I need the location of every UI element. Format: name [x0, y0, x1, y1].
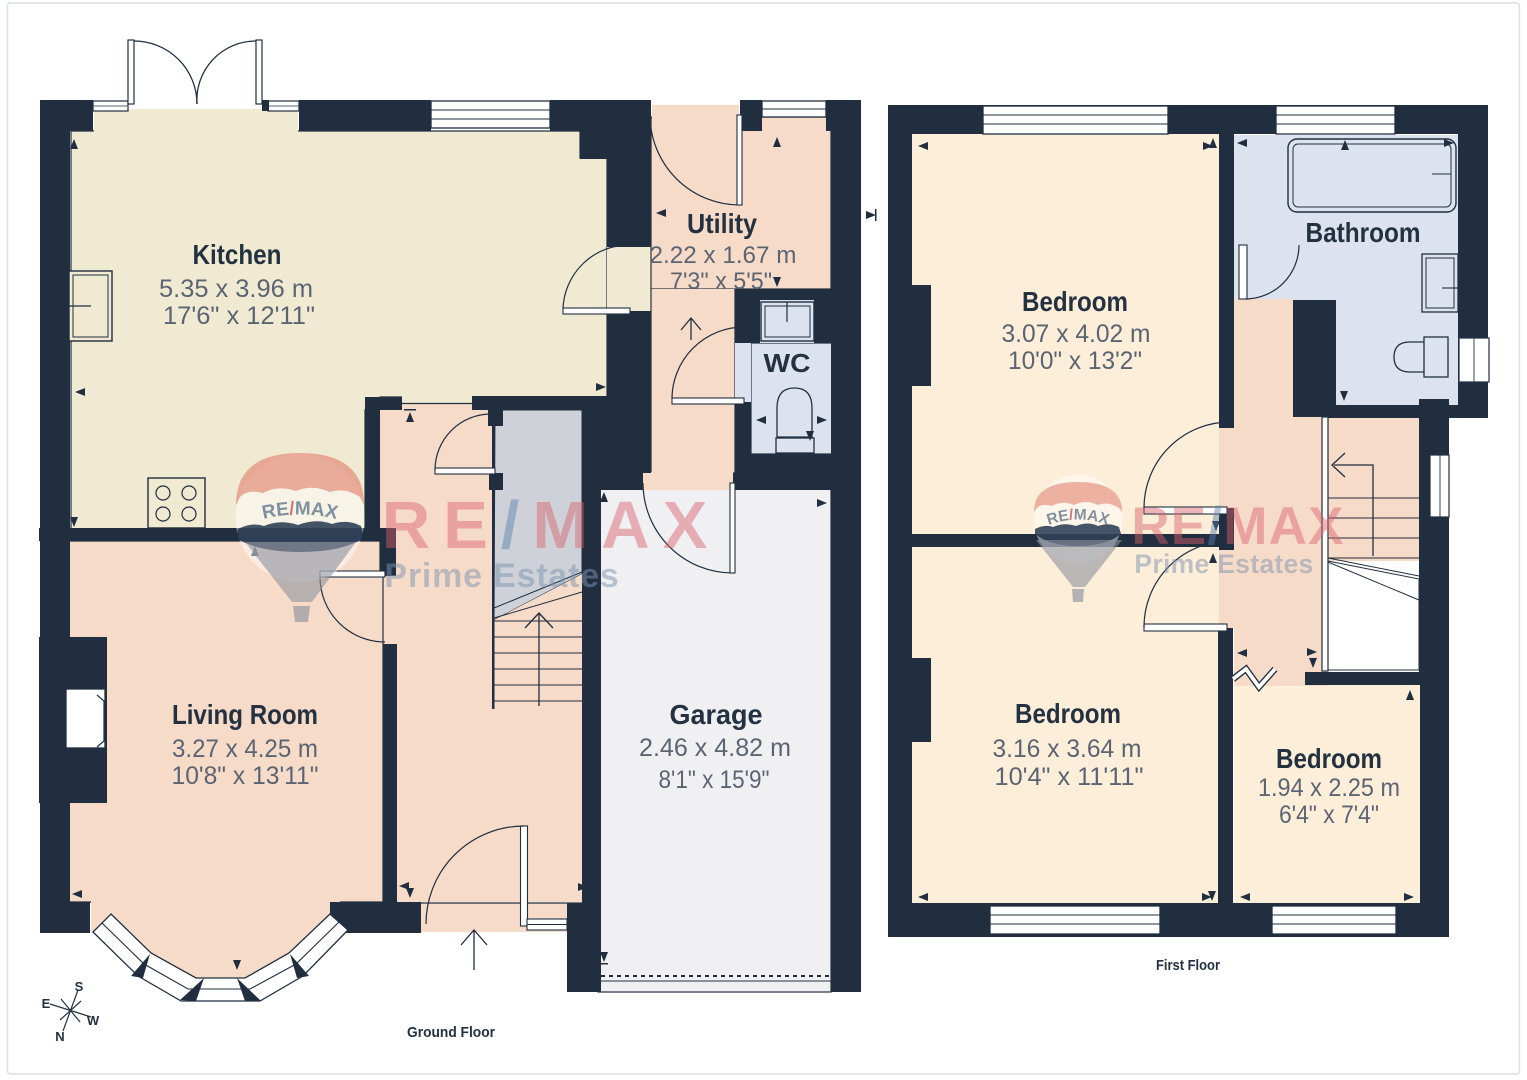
svg-text:1.94 x 2.25 m: 1.94 x 2.25 m	[1258, 774, 1400, 802]
svg-text:RE/MAX: RE/MAX	[382, 488, 721, 563]
svg-text:RE/MAX: RE/MAX	[1131, 497, 1344, 556]
svg-text:First Floor: First Floor	[1156, 957, 1220, 974]
svg-text:Utility: Utility	[687, 208, 757, 239]
svg-text:Garage: Garage	[670, 699, 763, 730]
svg-text:17'6" x 12'11": 17'6" x 12'11"	[163, 302, 315, 330]
svg-text:Bedroom: Bedroom	[1015, 698, 1121, 729]
svg-text:N: N	[55, 1029, 64, 1044]
svg-text:3.07 x 4.02 m: 3.07 x 4.02 m	[1002, 320, 1151, 348]
svg-text:Kitchen: Kitchen	[193, 239, 282, 270]
svg-text:Ground Floor: Ground Floor	[407, 1024, 495, 1041]
svg-text:10'4" x 11'11": 10'4" x 11'11"	[995, 763, 1144, 791]
svg-text:6'4" x 7'4": 6'4" x 7'4"	[1279, 801, 1379, 829]
svg-text:10'8" x 13'11": 10'8" x 13'11"	[172, 762, 319, 790]
svg-text:Living Room: Living Room	[172, 699, 318, 730]
svg-text:WC: WC	[764, 348, 811, 378]
svg-text:Bathroom: Bathroom	[1306, 217, 1421, 248]
svg-text:3.16 x 3.64 m: 3.16 x 3.64 m	[993, 735, 1142, 763]
svg-text:3.27 x 4.25 m: 3.27 x 4.25 m	[172, 735, 318, 763]
svg-text:S: S	[75, 979, 84, 994]
svg-text:E: E	[42, 996, 51, 1011]
svg-text:8'1" x 15'9": 8'1" x 15'9"	[659, 766, 770, 794]
svg-text:5.35 x 3.96 m: 5.35 x 3.96 m	[159, 275, 313, 303]
svg-text:10'0" x 13'2": 10'0" x 13'2"	[1008, 347, 1142, 375]
svg-text:2.22 x 1.67 m: 2.22 x 1.67 m	[650, 242, 797, 269]
svg-text:W: W	[87, 1013, 100, 1028]
svg-text:7'3" x 5'5": 7'3" x 5'5"	[670, 268, 772, 295]
svg-text:Prime Estates: Prime Estates	[384, 557, 619, 595]
svg-text:Bedroom: Bedroom	[1022, 286, 1128, 317]
svg-text:2.46 x 4.82 m: 2.46 x 4.82 m	[639, 734, 791, 762]
svg-text:Bedroom: Bedroom	[1276, 743, 1382, 774]
svg-text:Prime Estates: Prime Estates	[1134, 549, 1313, 579]
